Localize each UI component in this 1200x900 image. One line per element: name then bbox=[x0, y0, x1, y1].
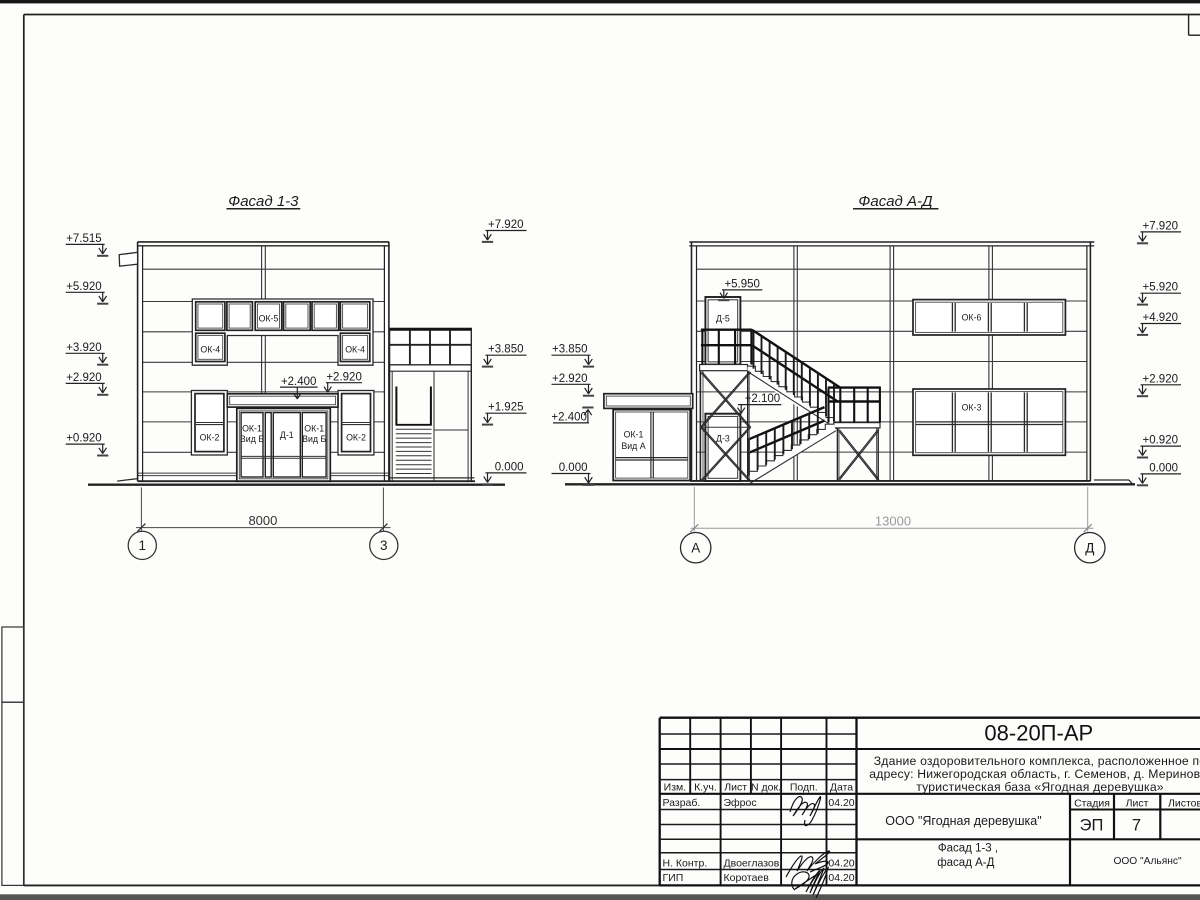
svg-text:Фасад 1-3 ,: Фасад 1-3 , bbox=[938, 843, 998, 855]
svg-text:Разраб.: Разраб. bbox=[663, 797, 701, 809]
svg-text:0.000: 0.000 bbox=[495, 461, 524, 473]
svg-text:13000: 13000 bbox=[875, 513, 911, 528]
svg-text:+2.920: +2.920 bbox=[1143, 373, 1179, 385]
svg-text:3: 3 bbox=[380, 538, 388, 553]
svg-text:фасад А-Д: фасад А-Д bbox=[937, 857, 994, 869]
svg-text:+2.400: +2.400 bbox=[551, 411, 587, 423]
svg-text:Изм.: Изм. bbox=[664, 781, 687, 793]
svg-text:ООО "Альянс": ООО "Альянс" bbox=[1113, 856, 1182, 867]
svg-text:Эфрос: Эфрос bbox=[724, 797, 757, 809]
svg-text:Д-5: Д-5 bbox=[716, 314, 730, 324]
svg-text:Д-3: Д-3 bbox=[716, 434, 730, 444]
svg-text:ОК-6: ОК-6 bbox=[962, 313, 982, 323]
svg-text:Здание оздоровительного компле: Здание оздоровительного комплекса, распо… bbox=[874, 754, 1200, 768]
svg-text:+5.920: +5.920 bbox=[1143, 282, 1179, 294]
svg-text:+7.920: +7.920 bbox=[1143, 220, 1179, 232]
svg-text:Подп.: Подп. bbox=[790, 781, 818, 793]
svg-text:Листов: Листов bbox=[1168, 798, 1200, 810]
svg-text:Лист: Лист bbox=[724, 781, 747, 793]
svg-text:ОК-1: ОК-1 bbox=[624, 430, 644, 440]
svg-text:ОК-1: ОК-1 bbox=[242, 424, 262, 434]
svg-text:К.уч.: К.уч. bbox=[694, 781, 717, 793]
svg-text:+7.920: +7.920 bbox=[488, 219, 524, 231]
svg-text:Коротаев: Коротаев bbox=[724, 872, 770, 884]
svg-text:Лист: Лист bbox=[1126, 798, 1149, 810]
svg-text:+5.950: +5.950 bbox=[724, 278, 760, 290]
svg-text:Вид А: Вид А bbox=[621, 441, 645, 451]
svg-text:N док.: N док. bbox=[751, 781, 781, 793]
svg-text:ООО "Ягодная деревушка": ООО "Ягодная деревушка" bbox=[885, 814, 1041, 828]
svg-text:Д: Д bbox=[1085, 541, 1094, 556]
svg-text:ОК-5: ОК-5 bbox=[259, 314, 279, 324]
svg-text:Стадия: Стадия bbox=[1074, 798, 1110, 810]
svg-text:+3.850: +3.850 bbox=[488, 344, 524, 356]
svg-text:+3.850: +3.850 bbox=[552, 344, 588, 356]
svg-text:+2.920: +2.920 bbox=[326, 371, 362, 383]
svg-text:04.20: 04.20 bbox=[828, 872, 854, 884]
svg-text:+3.920: +3.920 bbox=[66, 342, 102, 354]
svg-text:+2.100: +2.100 bbox=[745, 393, 781, 405]
svg-text:+5.920: +5.920 bbox=[66, 281, 102, 293]
svg-text:ГИП: ГИП bbox=[663, 872, 684, 884]
svg-text:Д-1: Д-1 bbox=[280, 430, 294, 440]
svg-text:7: 7 bbox=[1132, 817, 1141, 835]
svg-text:ЭП: ЭП bbox=[1080, 817, 1104, 835]
svg-text:Вид Б: Вид Б bbox=[240, 434, 264, 444]
svg-text:04.20: 04.20 bbox=[828, 797, 854, 809]
svg-text:ОК-4: ОК-4 bbox=[345, 345, 365, 355]
svg-text:+2.920: +2.920 bbox=[66, 372, 102, 384]
svg-text:08-20П-АР: 08-20П-АР bbox=[984, 721, 1093, 746]
svg-text:Дата: Дата bbox=[830, 781, 853, 793]
svg-text:Фасад 1-3: Фасад 1-3 bbox=[228, 193, 299, 210]
svg-text:ОК-2: ОК-2 bbox=[200, 433, 220, 443]
svg-text:+4.920: +4.920 bbox=[1143, 312, 1179, 324]
svg-text:ОК-4: ОК-4 bbox=[200, 345, 220, 355]
svg-text:+7.515: +7.515 bbox=[66, 233, 102, 245]
svg-text:0.000: 0.000 bbox=[559, 462, 588, 474]
svg-text:ОК-1: ОК-1 bbox=[304, 424, 324, 434]
svg-text:А: А bbox=[691, 541, 700, 556]
svg-text:ОК-2: ОК-2 bbox=[346, 433, 366, 443]
svg-text:+1.925: +1.925 bbox=[488, 402, 524, 414]
svg-text:1: 1 bbox=[139, 538, 147, 553]
svg-text:+0.920: +0.920 bbox=[66, 433, 102, 445]
svg-text:0.000: 0.000 bbox=[1149, 462, 1178, 474]
svg-text:+0.920: +0.920 bbox=[1143, 435, 1179, 447]
svg-text:ОК-3: ОК-3 bbox=[962, 403, 982, 413]
svg-text:Двоеглазов: Двоеглазов bbox=[724, 858, 780, 870]
svg-text:+2.920: +2.920 bbox=[552, 373, 588, 385]
svg-text:+2.400: +2.400 bbox=[281, 376, 317, 388]
svg-text:туристическая база «Ягодная де: туристическая база «Ягодная деревушка» bbox=[916, 780, 1164, 794]
svg-text:Вид Б: Вид Б bbox=[302, 434, 326, 444]
svg-text:8000: 8000 bbox=[248, 513, 277, 528]
svg-text:Фасад А-Д: Фасад А-Д bbox=[858, 193, 933, 210]
svg-text:Н. Контр.: Н. Контр. bbox=[663, 858, 708, 870]
svg-text:04.20: 04.20 bbox=[828, 858, 854, 870]
